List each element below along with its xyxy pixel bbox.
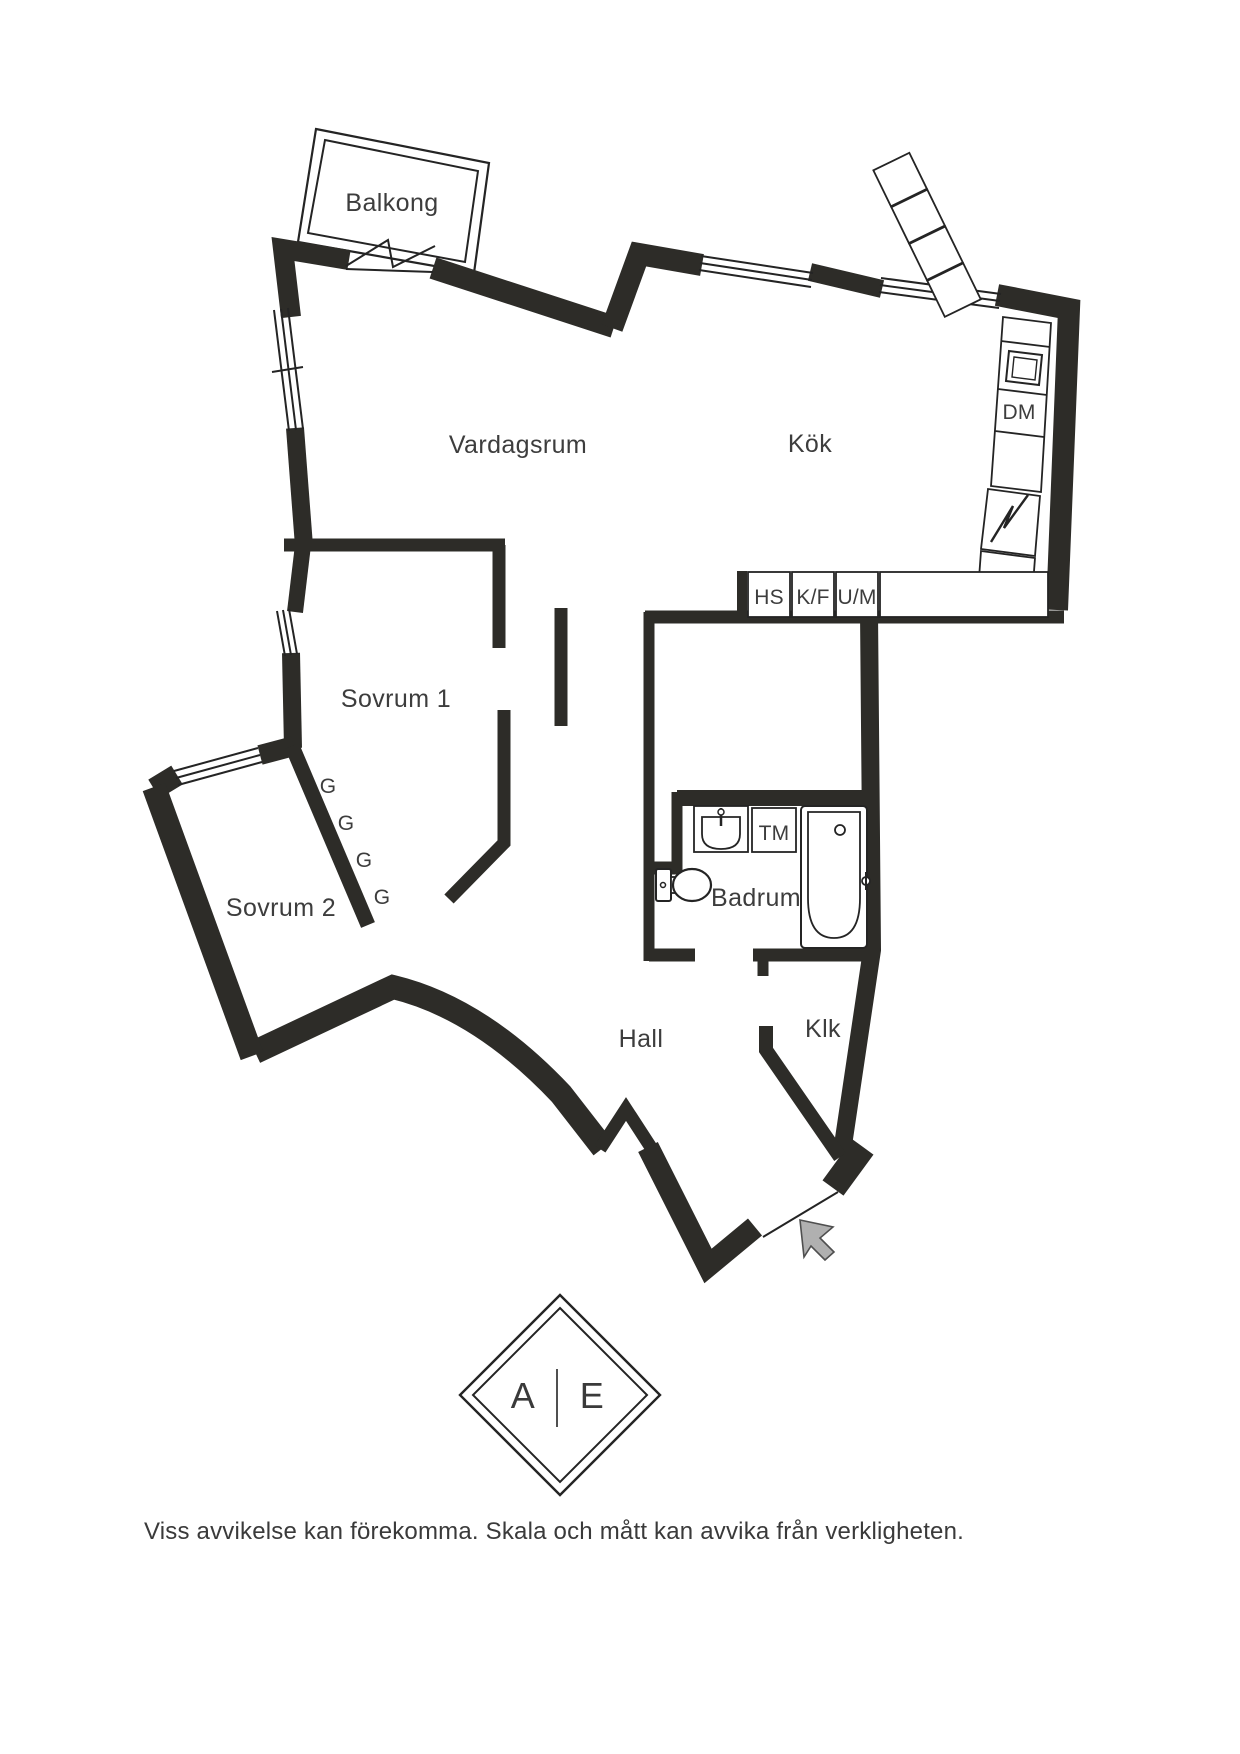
window-left-small (277, 609, 297, 656)
kitchen-fixtures (737, 317, 1051, 617)
room-label-klk: Klk (805, 1015, 841, 1043)
cabinet-wall-stub (737, 571, 747, 617)
room-label-kok: Kök (788, 430, 832, 458)
room-label-badrum: Badrum (711, 884, 801, 912)
washbasin-icon (694, 806, 748, 852)
cabinet-blank (880, 572, 1048, 617)
room-label-balkong: Balkong (345, 189, 438, 217)
logo-letter-e: E (580, 1375, 605, 1416)
window-kitchen-1 (699, 256, 813, 287)
logo-letter-a: A (511, 1375, 536, 1416)
room-label-sovrum2: Sovrum 2 (226, 894, 336, 922)
window-left-large (272, 308, 303, 431)
window-sovrum2 (174, 748, 262, 785)
wardrobe-label: G (320, 775, 337, 798)
balcony-door-icon (346, 240, 435, 272)
walls (154, 249, 1069, 1266)
floor-plan-page: G G G G Balkong Vardagsrum Kök Sovrum 1 … (0, 0, 1240, 1754)
bathtub-icon (801, 806, 870, 948)
label-hs: HS (754, 586, 784, 609)
wardrobe-label: G (338, 812, 355, 835)
floor-plan: G G G G Balkong Vardagsrum Kök Sovrum 1 … (0, 0, 1240, 1754)
entrance-arrow-icon (800, 1220, 834, 1260)
agency-logo: A E (460, 1295, 660, 1495)
toilet-icon (656, 869, 711, 901)
label-dm: DM (1002, 401, 1035, 424)
label-tm: TM (759, 822, 790, 845)
wardrobe-label: G (356, 849, 373, 872)
entrance (763, 1192, 838, 1260)
label-kf: K/F (796, 586, 829, 609)
wardrobe-label: G (374, 886, 391, 909)
room-label-vardagsrum: Vardagsrum (449, 431, 587, 459)
label-um: U/M (837, 586, 876, 609)
room-label-sovrum1: Sovrum 1 (341, 685, 451, 713)
stove-icon (981, 489, 1040, 556)
room-label-hall: Hall (619, 1025, 664, 1053)
disclaimer-text: Viss avvikelse kan förekomma. Skala och … (144, 1518, 964, 1545)
